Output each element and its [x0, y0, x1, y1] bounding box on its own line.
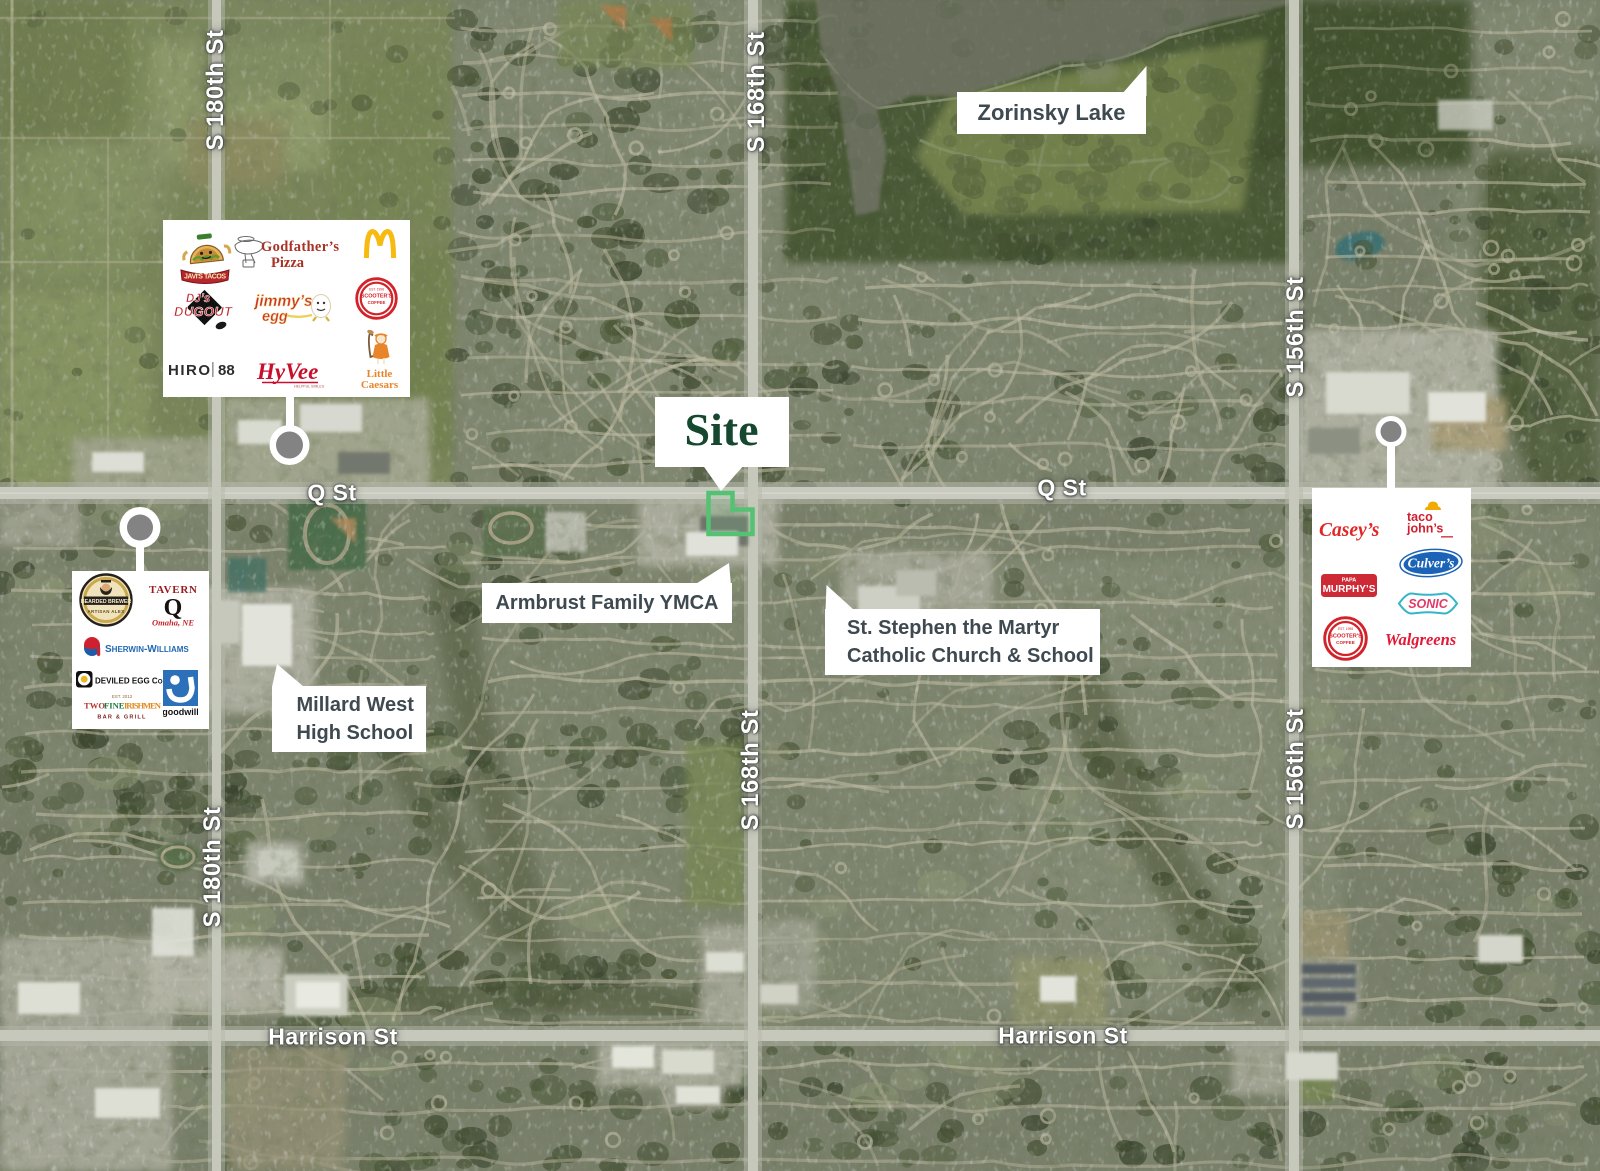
- svg-text:PAPA: PAPA: [1342, 578, 1357, 584]
- svg-text:HELPFUL SMILES: HELPFUL SMILES: [294, 385, 325, 389]
- svg-text:COFFEE: COFFEE: [1336, 640, 1355, 645]
- svg-text:JAVI'S TACOS: JAVI'S TACOS: [184, 274, 226, 281]
- svg-text:Caesars: Caesars: [361, 379, 399, 390]
- svg-text:Walgreens: Walgreens: [1385, 630, 1456, 649]
- svg-text:john’s: john’s: [1406, 522, 1443, 536]
- svg-text:88: 88: [218, 362, 235, 378]
- svg-text:EST. 1998: EST. 1998: [1338, 627, 1353, 631]
- svg-text:TWO: TWO: [84, 701, 105, 711]
- svg-text:FINE: FINE: [104, 701, 125, 711]
- svg-text:DUGOUT: DUGOUT: [174, 304, 233, 319]
- svg-text:Casey’s: Casey’s: [1319, 520, 1379, 541]
- svg-text:IRISHMEN: IRISHMEN: [124, 701, 162, 711]
- svg-text:SCOOTER'S: SCOOTER'S: [1329, 634, 1362, 640]
- svg-text:EST. 2013: EST. 2013: [112, 694, 133, 699]
- svg-text:MURPHY’S: MURPHY’S: [1323, 584, 1376, 595]
- svg-text:ARTISAN ALES: ARTISAN ALES: [87, 609, 124, 614]
- svg-text:HyVee: HyVee: [256, 359, 318, 384]
- svg-text:goodwill: goodwill: [163, 707, 198, 717]
- svg-text:Pizza: Pizza: [271, 255, 305, 271]
- svg-text:EST. 1998: EST. 1998: [369, 288, 384, 292]
- svg-text:BAR & GRILL: BAR & GRILL: [97, 715, 146, 721]
- svg-text:jimmy’s: jimmy’s: [254, 293, 313, 310]
- svg-text:DEVILED EGG CO: DEVILED EGG CO: [95, 677, 163, 686]
- svg-text:egg: egg: [262, 309, 288, 324]
- svg-text:BEARDED BREWER: BEARDED BREWER: [81, 599, 131, 605]
- svg-text:COFFEE: COFFEE: [368, 300, 386, 305]
- svg-text:Godfather’s: Godfather’s: [261, 239, 339, 255]
- svg-text:Culver’s: Culver’s: [1408, 556, 1455, 571]
- svg-text:SONIC: SONIC: [1408, 597, 1449, 611]
- svg-text:HIRO: HIRO: [168, 362, 212, 378]
- svg-text:SHERWIN-WILLIAMS: SHERWIN-WILLIAMS: [105, 644, 189, 655]
- svg-text:SCOOTER'S: SCOOTER'S: [361, 294, 393, 300]
- svg-text:Omaha, NE: Omaha, NE: [152, 618, 194, 628]
